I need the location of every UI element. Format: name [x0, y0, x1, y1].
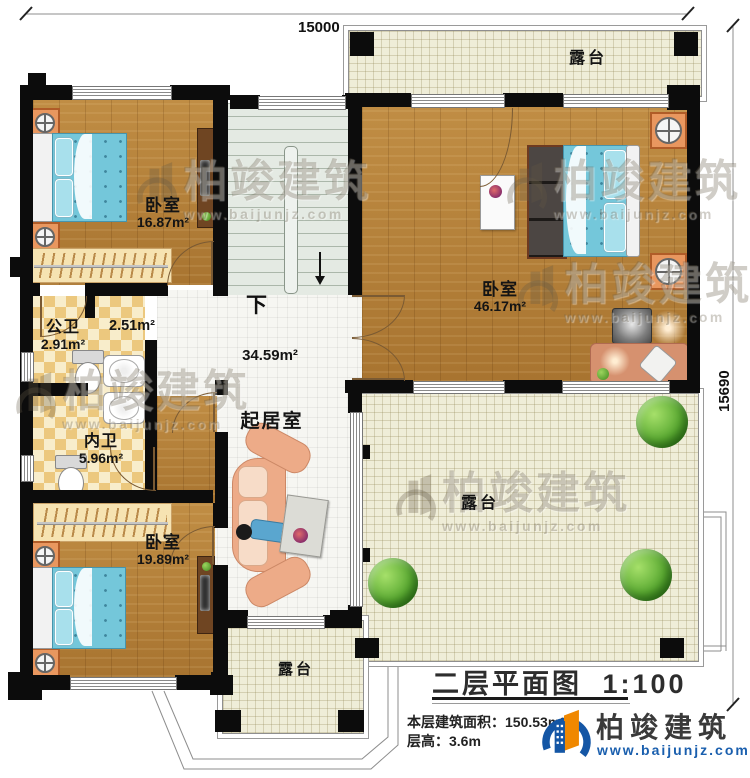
plan-title: 二层平面图 1:100 — [432, 662, 687, 701]
room-name: 卧室 — [454, 280, 546, 299]
door-leaf — [352, 295, 404, 297]
stair-arrow-head — [315, 276, 325, 285]
stairs-down-label: 下 — [246, 289, 267, 319]
room-name: 卧室 — [118, 533, 208, 552]
room-area: 2.91m² — [34, 337, 92, 353]
sliding-door — [247, 616, 325, 629]
door-leaf — [352, 378, 404, 380]
wall-segment — [503, 380, 562, 393]
window — [563, 94, 669, 108]
tree — [636, 396, 688, 448]
wall-segment — [20, 383, 88, 396]
pillow — [604, 203, 626, 252]
room-label-master-bedroom: 卧室 46.17m² — [454, 280, 546, 315]
wall-segment — [20, 283, 40, 296]
tv-set — [612, 308, 652, 344]
bed-headboard — [30, 133, 54, 222]
plan-scale: 1:100 — [603, 669, 687, 699]
flower-vase — [293, 528, 308, 543]
door-leaf — [211, 241, 213, 285]
blanket-fold — [74, 134, 92, 219]
room-name: 卧室 — [118, 196, 208, 215]
wardrobe — [30, 248, 172, 283]
sofa-cushion — [238, 466, 268, 498]
flower — [597, 368, 609, 380]
wall-pillar — [22, 690, 42, 700]
column — [674, 32, 698, 56]
wall-segment — [213, 95, 228, 283]
pillow — [604, 150, 626, 199]
person-head — [236, 524, 252, 540]
room-area: 16.87m² — [118, 215, 208, 231]
wall-pillar — [222, 610, 248, 628]
wall-pillar — [211, 672, 225, 684]
window — [413, 381, 505, 394]
wall-segment — [213, 283, 228, 296]
room-label-living-name: 起居室 — [228, 411, 316, 432]
flower-vase — [489, 185, 502, 198]
monitor — [200, 160, 210, 196]
floor-height-value: 3.6m — [449, 733, 481, 749]
floor-area-label: 本层建筑面积： — [407, 714, 505, 730]
sliding-door — [411, 94, 505, 108]
wall-pillar — [28, 73, 46, 85]
room-label-terrace-bottom: 露台 — [268, 662, 324, 679]
room-label-terrace-right: 露台 — [450, 495, 510, 513]
wall-segment — [213, 503, 228, 528]
column — [350, 32, 374, 56]
wall-segment — [348, 103, 362, 295]
bed-bench — [527, 145, 567, 259]
sliding-door — [350, 412, 363, 607]
pillow — [55, 571, 73, 607]
washbasin — [103, 392, 145, 424]
room-name: 公卫 — [34, 319, 92, 337]
wall-segment — [215, 432, 228, 503]
wall-segment — [230, 95, 260, 109]
column — [355, 638, 379, 658]
brand-logo-icon — [536, 706, 592, 771]
wall-segment — [88, 283, 168, 296]
title-underline — [432, 697, 628, 700]
pillow — [55, 138, 73, 176]
coffee-table — [279, 494, 329, 557]
wall-pillar — [330, 610, 356, 628]
wall-segment — [503, 93, 563, 107]
column — [215, 710, 241, 732]
nightstand — [650, 253, 687, 290]
room-area: 46.17m² — [454, 299, 546, 315]
nightstand — [650, 112, 687, 149]
door-leaf — [153, 447, 155, 490]
window — [72, 86, 172, 100]
column — [338, 710, 364, 732]
wall-segment — [668, 380, 700, 393]
wall-pillar — [10, 257, 20, 277]
dimension-top: 15000 — [298, 19, 340, 36]
floor-height-line: 层高：3.6m — [407, 731, 481, 751]
wall-segment — [20, 490, 213, 503]
room-label-private-bathroom: 内卫 5.96m² — [70, 433, 132, 467]
plan-title-text: 二层平面图 — [432, 669, 582, 699]
room-area: 2.51m² — [103, 318, 161, 334]
window — [70, 677, 177, 690]
room-label-wash-area: 2.51m² — [103, 318, 161, 334]
washbasin — [103, 355, 145, 387]
lamp-glow — [650, 310, 686, 346]
bed-headboard — [626, 145, 640, 257]
pillow — [55, 179, 73, 217]
room-area: 34.59m² — [228, 348, 312, 365]
dimension-right: 15690 — [716, 370, 733, 412]
room-label-bedroom1: 卧室 16.87m² — [118, 196, 208, 231]
stair-direction-arrow — [319, 252, 321, 276]
bed-headboard — [30, 567, 54, 649]
nightstand — [30, 648, 60, 678]
column — [660, 638, 684, 658]
brand-website: www.baijunjz.com — [597, 742, 750, 758]
room-label-bedroom3: 卧室 19.89m² — [118, 533, 208, 568]
top-terrace-floor — [348, 30, 702, 97]
wall-pillar — [8, 672, 22, 700]
stair-handrail — [284, 146, 298, 294]
blanket-fold — [566, 146, 586, 254]
room-label-public-bathroom: 公卫 2.91m² — [34, 319, 92, 353]
window — [21, 352, 34, 382]
monitor — [200, 575, 210, 611]
wall-segment — [687, 93, 700, 393]
room-area: 19.89m² — [118, 552, 208, 568]
room-label-terrace-top: 露台 — [558, 50, 618, 68]
floor-plan: 柏竣建筑 www.baijunjz.com 柏竣建筑 www.baijunjz.… — [0, 0, 750, 778]
room-name: 内卫 — [70, 433, 132, 451]
wall-segment — [345, 380, 413, 393]
floor-height-label: 层高： — [407, 733, 449, 749]
window — [562, 381, 670, 394]
title-underline-thin — [432, 703, 630, 704]
pillow — [55, 609, 73, 645]
window — [258, 96, 346, 110]
blanket-fold — [74, 568, 92, 646]
wall-segment — [348, 393, 362, 413]
room-label-living-area: 34.59m² — [228, 348, 312, 365]
tree — [620, 549, 672, 601]
room-name: 起居室 — [228, 411, 316, 432]
tree — [368, 558, 418, 608]
wall-segment — [20, 675, 70, 690]
door-leaf — [213, 392, 215, 432]
room-area: 5.96m² — [70, 451, 132, 467]
brand-name: 柏竣建筑 — [596, 706, 732, 746]
window — [21, 455, 34, 482]
door-leaf — [212, 526, 214, 564]
